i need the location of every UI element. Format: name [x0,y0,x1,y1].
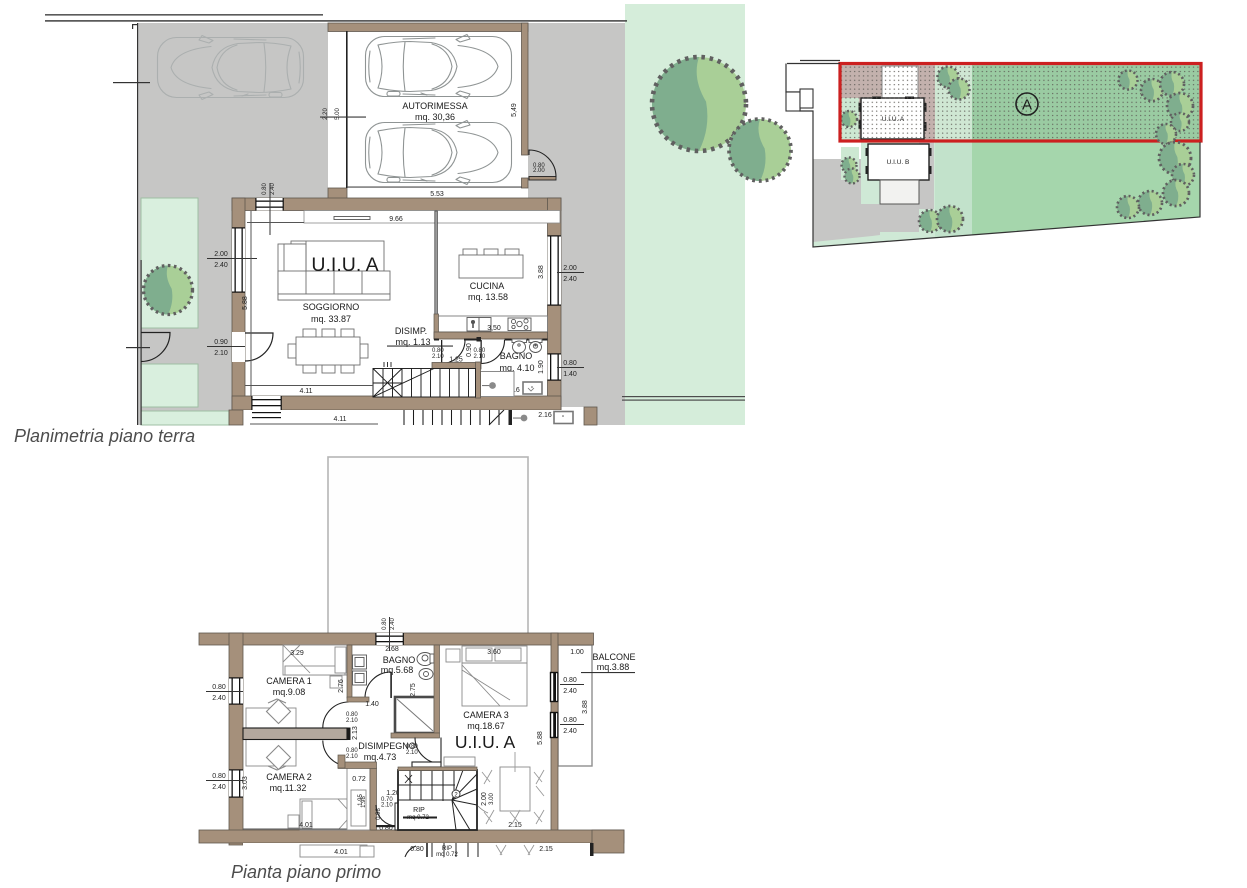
svg-text:3,50: 3,50 [487,325,501,332]
svg-text:2.10: 2.10 [406,750,418,756]
svg-text:0.80: 0.80 [262,183,268,195]
svg-text:2.13: 2.13 [352,726,359,740]
svg-text:mq. 13.58: mq. 13.58 [468,292,508,302]
svg-text:2.68: 2.68 [385,646,399,653]
svg-text:2.10: 2.10 [214,350,228,357]
svg-text:mq 0.72: mq 0.72 [436,852,458,858]
svg-text:2.40: 2.40 [563,728,577,735]
svg-text:CAMERA 3: CAMERA 3 [463,710,509,720]
svg-text:5.53: 5.53 [430,191,444,198]
svg-text:5.88: 5.88 [537,731,544,745]
svg-text:2.40: 2.40 [270,183,276,195]
svg-text:0.80: 0.80 [563,717,577,724]
svg-text:2.40: 2.40 [212,695,226,702]
svg-text:CAMERA 1: CAMERA 1 [266,676,312,686]
svg-text:mq. 33.87: mq. 33.87 [311,314,351,324]
svg-text:2.10: 2.10 [346,754,358,760]
svg-text:BAGNO: BAGNO [383,655,416,665]
svg-text:2.40: 2.40 [212,784,226,791]
svg-text:2.20: 2.20 [323,108,329,120]
svg-text:5.00: 5.00 [335,108,341,120]
svg-text:0.80: 0.80 [212,773,226,780]
svg-text:0.80: 0.80 [563,360,577,367]
svg-text:4.11: 4.11 [333,416,346,423]
svg-text:RIP: RIP [413,807,425,814]
svg-text:2.15: 2.15 [508,822,522,829]
svg-text:U.I.U. A: U.I.U. A [455,732,516,752]
svg-text:2.16: 2.16 [538,412,552,419]
svg-text:1.40: 1.40 [365,701,379,708]
svg-text:9.66: 9.66 [389,216,403,223]
svg-text:4.11: 4.11 [299,388,312,395]
svg-text:BALCONE: BALCONE [592,652,635,662]
svg-text:2.40: 2.40 [563,276,577,283]
svg-text:3.29: 3.29 [290,650,304,657]
svg-text:0.80: 0.80 [563,677,577,684]
svg-text:3.88: 3.88 [582,700,589,714]
svg-text:1.00: 1.00 [570,649,584,656]
svg-text:2.00: 2.00 [214,251,228,258]
svg-text:AUTORIMESSA: AUTORIMESSA [402,101,467,111]
svg-text:Planimetria piano terra: Planimetria piano terra [14,426,195,446]
svg-text:2.00: 2.00 [533,168,545,174]
svg-text:3.00: 3.00 [489,793,495,805]
svg-text:0.90: 0.90 [466,343,473,357]
svg-text:2.10: 2.10 [346,718,358,724]
svg-text:2.15: 2.15 [539,846,553,853]
svg-text:3.03: 3.03 [242,776,249,790]
svg-text:U.I.U. A: U.I.U. A [311,254,378,276]
svg-text:2.40: 2.40 [563,688,577,695]
svg-text:2.75: 2.75 [410,683,417,697]
svg-text:2.10: 2.10 [381,803,393,809]
svg-text:0.80: 0.80 [212,684,226,691]
svg-text:U.I.U. B: U.I.U. B [887,159,910,166]
svg-text:2.40: 2.40 [390,618,396,630]
svg-text:2.00: 2.00 [481,792,488,806]
svg-text:mq.18.67: mq.18.67 [467,721,505,731]
svg-text:0.90: 0.90 [214,339,228,346]
svg-text:3.88: 3.88 [538,265,545,279]
svg-text:A: A [1022,97,1032,114]
svg-text:4.01: 4.01 [299,822,313,829]
svg-text:mq.9.08: mq.9.08 [273,687,306,697]
svg-text:CAMERA 2: CAMERA 2 [266,772,312,782]
svg-text:mq.5.68: mq.5.68 [381,665,414,675]
svg-text:0.80: 0.80 [410,846,424,853]
svg-text:SOGGIORNO: SOGGIORNO [303,302,360,312]
svg-text:Pianta piano primo: Pianta piano primo [231,862,381,882]
svg-text:1.40: 1.40 [563,371,577,378]
svg-text:DISIMP.: DISIMP. [395,326,427,336]
svg-text:mq.4.73: mq.4.73 [364,752,397,762]
svg-text:CUCINA: CUCINA [470,281,505,291]
svg-text:2.00: 2.00 [563,265,577,272]
svg-text:0.80: 0.80 [379,825,393,832]
svg-text:5.88: 5.88 [242,296,249,310]
svg-text:mq.3.88: mq.3.88 [597,662,630,672]
svg-text:3.60: 3.60 [487,649,501,656]
svg-text:2.76: 2.76 [338,679,345,693]
svg-text:1.90: 1.90 [538,360,545,374]
svg-text:2.10: 2.10 [432,354,444,360]
svg-text:mq.11.32: mq.11.32 [270,783,307,793]
svg-text:1.98: 1.98 [361,796,367,808]
svg-text:mq. 30,36: mq. 30,36 [415,112,455,122]
svg-text:5,49: 5,49 [511,103,518,117]
svg-text:2.10: 2.10 [474,354,486,360]
svg-text:4.01: 4.01 [334,849,348,856]
svg-text:2.40: 2.40 [214,262,228,269]
svg-text:0.80: 0.80 [382,618,388,630]
svg-text:0.72: 0.72 [352,776,366,783]
